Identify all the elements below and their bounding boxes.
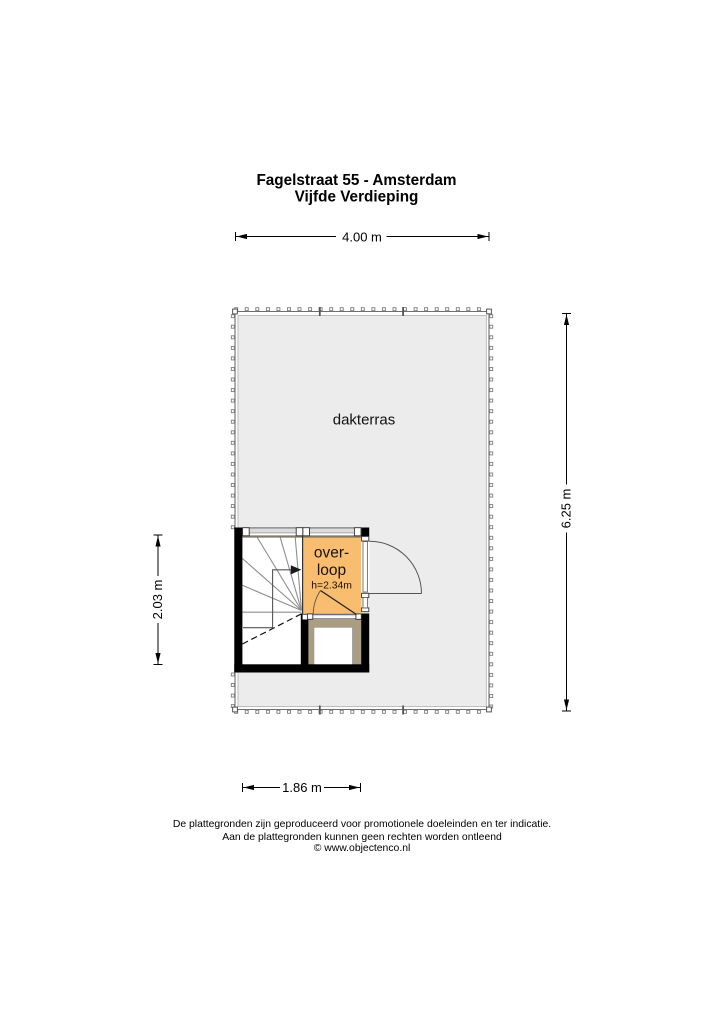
svg-text:Fagelstraat 55 - Amsterdam: Fagelstraat 55 - Amsterdam	[256, 172, 456, 189]
svg-text:Aan de plattegronden kunnen ge: Aan de plattegronden kunnen geen rechten…	[222, 832, 502, 843]
svg-text:h=2.34m: h=2.34m	[311, 581, 352, 592]
svg-text:De plattegronden zijn geproduc: De plattegronden zijn geproduceerd voor …	[173, 819, 551, 830]
svg-text:4.00 m: 4.00 m	[342, 230, 382, 245]
svg-text:2.03 m: 2.03 m	[150, 580, 165, 620]
svg-text:© www.objectenco.nl: © www.objectenco.nl	[314, 843, 411, 854]
svg-text:6.25 m: 6.25 m	[559, 489, 574, 529]
svg-text:Vijfde Verdieping: Vijfde Verdieping	[295, 188, 419, 205]
svg-text:dakterras: dakterras	[333, 412, 396, 429]
svg-text:over-: over-	[314, 545, 349, 562]
svg-text:1.86 m: 1.86 m	[282, 780, 322, 795]
svg-text:loop: loop	[317, 562, 346, 579]
